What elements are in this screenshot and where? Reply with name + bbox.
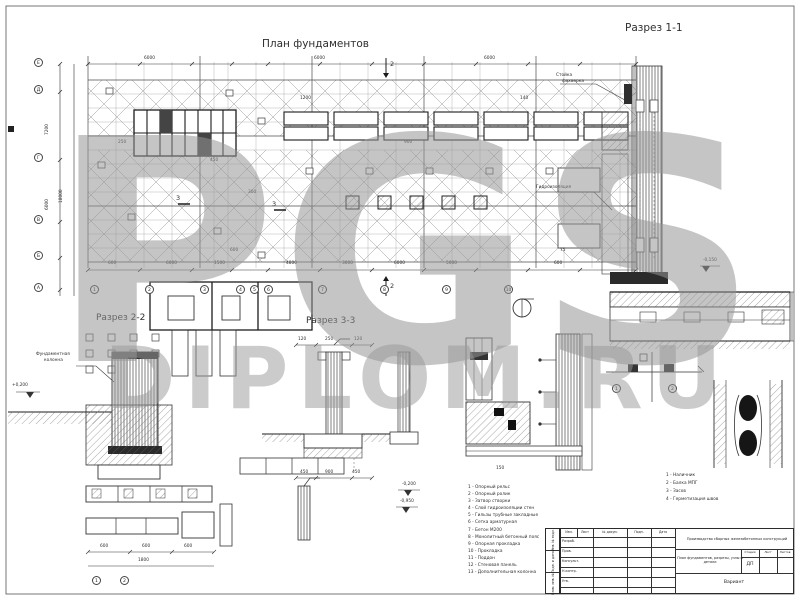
stamp-header-cell: № докум. <box>593 529 627 537</box>
legend-small: 1 - Наличник 2 - Балка МПГ 3 - Засов 4 -… <box>666 472 718 504</box>
section1-title: Разрез 1-1 <box>625 22 683 34</box>
dimension-label: 6000 <box>394 261 405 266</box>
stamp-side-cell: Инв. № подл. <box>546 529 559 551</box>
dimension-label: 6000 <box>484 56 495 61</box>
stamp-sheet-title: План фундаментов, разрезы, узлы и детали <box>675 549 745 573</box>
detail-joint-linework <box>714 380 782 468</box>
axis-bubble: Г <box>34 153 43 162</box>
cut-mark-label: 2 <box>390 60 394 68</box>
axis-bubble: Б <box>34 251 43 260</box>
dimension-label: 18000 <box>59 189 64 203</box>
axis-bubble: В <box>34 215 43 224</box>
legend-item: 4 - Слой гидроизоляции стен <box>468 505 539 512</box>
dimension-label: 600 <box>184 544 192 549</box>
stamp-doc-title: Производство сборных железобетонных конс… <box>675 529 799 549</box>
legend-item: 10 - Прокладка <box>468 548 539 555</box>
axis-bubble: Е <box>34 58 43 67</box>
dimension-label: 3000 <box>342 261 353 266</box>
section2-title: Разрез 2-2 <box>96 313 145 323</box>
drawing-sheet: План фундаментов Разрез 1-1 Разрез 2-2 Р… <box>0 0 800 600</box>
detail-bubble: 1 <box>92 576 101 585</box>
axis-bubble: 2 <box>668 384 677 393</box>
stamp-sheets-label: Листов <box>777 549 793 557</box>
stamp-side-label: Подп. и дата <box>551 551 555 573</box>
leader-label: фахверка <box>562 79 584 84</box>
dimension-label: 450 <box>210 158 218 163</box>
legend-item: 1 - Наличник <box>666 472 718 480</box>
dimension-label: 6000 <box>45 199 50 210</box>
leader-label: колонна <box>44 358 63 363</box>
axis-bubble: 2 <box>145 285 154 294</box>
legend-item: 2 - Опорный ролик <box>468 491 539 498</box>
legend-item: 1 - Опорный рельс <box>468 484 539 491</box>
dimension-label: 1200 <box>300 96 311 101</box>
plan-title: План фундаментов <box>262 38 369 50</box>
legend-item: 4 - Герметизация швов <box>666 496 718 504</box>
dimension-label: 600 <box>230 248 238 253</box>
stamp-side-column: Инв. № подл. Подп. и дата Взам. инв. № <box>545 528 560 594</box>
detail-right-linework <box>606 352 704 402</box>
cut-mark-label: 2 <box>390 282 394 290</box>
legend-item: 7 - Бетон М200 <box>468 527 539 534</box>
dimension-label: 900 <box>404 140 412 145</box>
axis-bubble: 10 <box>504 285 513 294</box>
dimension-label: 450 <box>352 470 360 475</box>
stamp-row-label: Разраб. <box>562 537 593 547</box>
dimension-label: 6000 <box>144 56 155 61</box>
axis-bubble: 8 <box>380 285 389 294</box>
dimension-label: 120 <box>354 337 362 342</box>
axis-bubble: 1 <box>90 285 99 294</box>
elevation-label: -0,950 <box>400 499 414 504</box>
axis-bubble: 6 <box>264 285 273 294</box>
stamp-header-cell: Дата <box>651 529 675 537</box>
dimension-label: 150 <box>496 466 504 471</box>
dimension-label: 600 <box>142 544 150 549</box>
legend-item: 3 - Затвор створки <box>468 498 539 505</box>
stamp-stage-value: ДП <box>741 557 759 573</box>
leader-label: Стойка <box>556 73 572 78</box>
stamp-row-label: Утв. <box>562 577 593 587</box>
legend-item: 9 - Опорная прокладка <box>468 541 539 548</box>
legend-item: 3 - Засов <box>666 488 718 496</box>
stamp-header-cell: Подп. <box>627 529 651 537</box>
stamp-stage-label: Стадия <box>741 549 759 557</box>
axis-bubble: А <box>34 283 43 292</box>
plan-hatch <box>88 80 636 262</box>
dimension-label: 900 <box>325 470 333 475</box>
cut-mark-label: 3 <box>272 200 276 208</box>
dimension-label: 600 <box>100 544 108 549</box>
dimension-label: 600 <box>108 261 116 266</box>
stamp-side-cell: Взам. инв. № <box>546 573 559 594</box>
drawing-linework <box>0 0 800 600</box>
dimension-label: 300 <box>248 190 256 195</box>
dimension-label: 6000 <box>166 261 177 266</box>
dimension-label: 1800 <box>138 558 149 563</box>
stamp-org: Вариант <box>675 573 793 593</box>
legend-item: 12 - Стеновая панель <box>468 562 539 569</box>
axis-bubble: 5 <box>250 285 259 294</box>
dimension-label: 250 <box>118 140 126 145</box>
cut-mark-label: 3 <box>176 194 180 202</box>
legend-item: 13 - Дополнительная колонна <box>468 569 539 576</box>
dimension-label: 75 <box>560 248 565 253</box>
legend-main: 1 - Опорный рельс 2 - Опорный ролик 3 - … <box>468 484 539 576</box>
legend-item: 11 - Поддон <box>468 555 539 562</box>
section3-linework <box>262 339 420 513</box>
axis-bubble: 4 <box>236 285 245 294</box>
axis-bubble: 7 <box>318 285 327 294</box>
stamp-header-cell: Изм. <box>561 529 577 537</box>
dimension-label: 140 <box>520 96 528 101</box>
dimension-label: 1500 <box>214 261 225 266</box>
dimension-label: 120 <box>298 337 306 342</box>
axis-bubble: 1 <box>612 384 621 393</box>
dimension-label: 5000 <box>446 261 457 266</box>
stamp-side-label: Взам. инв. № <box>551 573 555 595</box>
legend-item: 5 - Гильзы трубные закладные <box>468 512 539 519</box>
axis-bubble: 9 <box>442 285 451 294</box>
axis-bubble: Д <box>34 85 43 94</box>
plan-cell-block <box>134 110 236 156</box>
dimension-label: 6000 <box>314 56 325 61</box>
elevation-label: -0,150 <box>703 258 717 263</box>
legend-item: 2 - Балка МПГ <box>666 480 718 488</box>
dimension-label: 4800 <box>286 261 297 266</box>
axis-bubble: 3 <box>200 285 209 294</box>
detail-bubble: 2 <box>120 576 129 585</box>
stamp-header-cell: Лист <box>577 529 593 537</box>
dimension-label: 600 <box>554 261 562 266</box>
stamp-row-label: Н.контр. <box>562 567 593 577</box>
stamp-row-label: Консульт. <box>562 557 593 567</box>
stamp-side-cell: Подп. и дата <box>546 551 559 573</box>
elevation-label: +0,200 <box>12 383 28 388</box>
legend-item: 6 - Сетка арматурная <box>468 519 539 526</box>
dimension-label: 450 <box>300 470 308 475</box>
stamp-row-label: Пров. <box>562 547 593 557</box>
leader-label: Гидроизоляция <box>536 185 571 190</box>
dimension-label: 250 <box>325 337 333 342</box>
detail-center-linework <box>466 299 592 470</box>
elevation-label: -0,200 <box>402 482 416 487</box>
legend-item: 8 - Монолитный бетонный пояс <box>468 534 539 541</box>
section3-title: Разрез 3-3 <box>306 316 355 326</box>
stamp-side-label: Инв. № подл. <box>551 529 555 551</box>
title-block: Изм. Лист № докум. Подп. Дата Разраб. Пр… <box>560 528 794 594</box>
stamp-sheet-label: Лист <box>759 549 777 557</box>
dimension-label: 7200 <box>45 124 50 135</box>
leader-label: Фундаментная <box>36 352 70 357</box>
